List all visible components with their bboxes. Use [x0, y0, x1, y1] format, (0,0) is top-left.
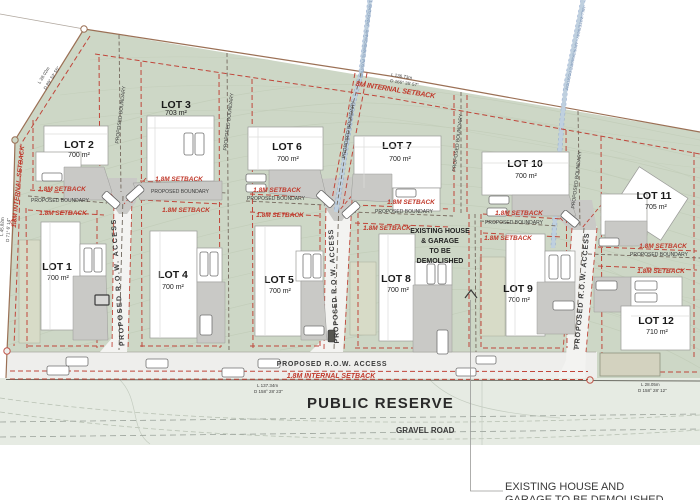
svg-text:LOT 8: LOT 8	[381, 273, 411, 285]
svg-text:LOT 2: LOT 2	[64, 139, 94, 151]
svg-text:700 m²: 700 m²	[277, 156, 299, 163]
svg-text:710 m²: 710 m²	[646, 329, 668, 336]
svg-text:LOT 7: LOT 7	[382, 140, 412, 152]
svg-text:LOT 4: LOT 4	[158, 269, 188, 281]
svg-text:LOT 12: LOT 12	[638, 315, 674, 327]
svg-text:& GARAGE: & GARAGE	[421, 238, 459, 245]
svg-text:700 m²: 700 m²	[162, 284, 184, 291]
svg-text:700 m²: 700 m²	[508, 297, 530, 304]
svg-text:LOT 11: LOT 11	[636, 190, 671, 202]
svg-text:700 m²: 700 m²	[389, 156, 411, 163]
svg-text:LOT 6: LOT 6	[272, 141, 302, 153]
svg-text:700 m²: 700 m²	[68, 152, 90, 159]
svg-text:1.8M SETBACK: 1.8M SETBACK	[637, 268, 686, 275]
svg-text:705 m²: 705 m²	[645, 204, 667, 211]
svg-text:700 m²: 700 m²	[387, 287, 409, 294]
svg-text:1.8M SETBACK: 1.8M SETBACK	[363, 225, 412, 232]
svg-text:LOT 9: LOT 9	[503, 283, 533, 295]
svg-text:GRAVEL ROAD: GRAVEL ROAD	[396, 426, 455, 435]
svg-text:L 28.05m: L 28.05m	[641, 382, 660, 387]
svg-text:LOT 5: LOT 5	[264, 274, 294, 286]
svg-text:PUBLIC RESERVE: PUBLIC RESERVE	[307, 395, 454, 412]
svg-text:1.8M SETBACK: 1.8M SETBACK	[253, 187, 302, 194]
svg-text:EXISTING HOUSE: EXISTING HOUSE	[410, 228, 470, 235]
svg-text:PROPOSED BOUNDARY: PROPOSED BOUNDARY	[151, 189, 210, 195]
svg-text:1.8M SETBACK: 1.8M SETBACK	[639, 243, 688, 250]
svg-text:PROPOSED R.O.W. ACCESS: PROPOSED R.O.W. ACCESS	[277, 361, 387, 368]
svg-text:D 158° 28' 23": D 158° 28' 23"	[254, 389, 283, 394]
svg-text:700 m²: 700 m²	[269, 288, 291, 295]
svg-text:1.8M SETBACK: 1.8M SETBACK	[38, 186, 87, 193]
svg-text:1.8M SETBACK: 1.8M SETBACK	[256, 212, 305, 219]
svg-text:DEMOLISHED: DEMOLISHED	[417, 258, 464, 265]
svg-text:LOT 1: LOT 1	[42, 261, 72, 273]
svg-text:L 137.34m: L 137.34m	[257, 383, 278, 388]
svg-text:LOT 10: LOT 10	[507, 158, 543, 170]
svg-text:1.8M SETBACK: 1.8M SETBACK	[39, 210, 88, 217]
svg-text:PROPOSED BOUNDARY: PROPOSED BOUNDARY	[31, 198, 90, 204]
svg-text:PROPOSED BOUNDARY: PROPOSED BOUNDARY	[630, 252, 689, 258]
svg-text:703 m²: 703 m²	[165, 110, 187, 117]
svg-text:700 m²: 700 m²	[515, 173, 537, 180]
svg-text:GARAGE TO BE DEMOLISHED: GARAGE TO BE DEMOLISHED	[505, 494, 664, 500]
svg-text:PROPOSED BOUNDARY: PROPOSED BOUNDARY	[375, 209, 434, 215]
svg-text:700 m²: 700 m²	[47, 275, 69, 282]
svg-text:1.8M SETBACK: 1.8M SETBACK	[495, 210, 544, 217]
svg-text:1.8M SETBACK: 1.8M SETBACK	[162, 207, 211, 214]
svg-text:D 158° 28' 12": D 158° 28' 12"	[638, 388, 667, 393]
svg-text:1.8M SETBACK: 1.8M SETBACK	[155, 176, 204, 183]
svg-text:1.8M INTERNAL SETBACK: 1.8M INTERNAL SETBACK	[287, 373, 376, 380]
svg-text:EXISTING HOUSE AND: EXISTING HOUSE AND	[505, 481, 624, 493]
svg-text:TO BE: TO BE	[429, 248, 451, 255]
svg-text:PROPOSED BOUNDARY: PROPOSED BOUNDARY	[247, 196, 306, 202]
svg-text:1.8M SETBACK: 1.8M SETBACK	[387, 199, 436, 206]
svg-text:1.8M SETBACK: 1.8M SETBACK	[484, 235, 533, 242]
svg-text:PROPOSED BOUNDARY: PROPOSED BOUNDARY	[485, 220, 544, 226]
